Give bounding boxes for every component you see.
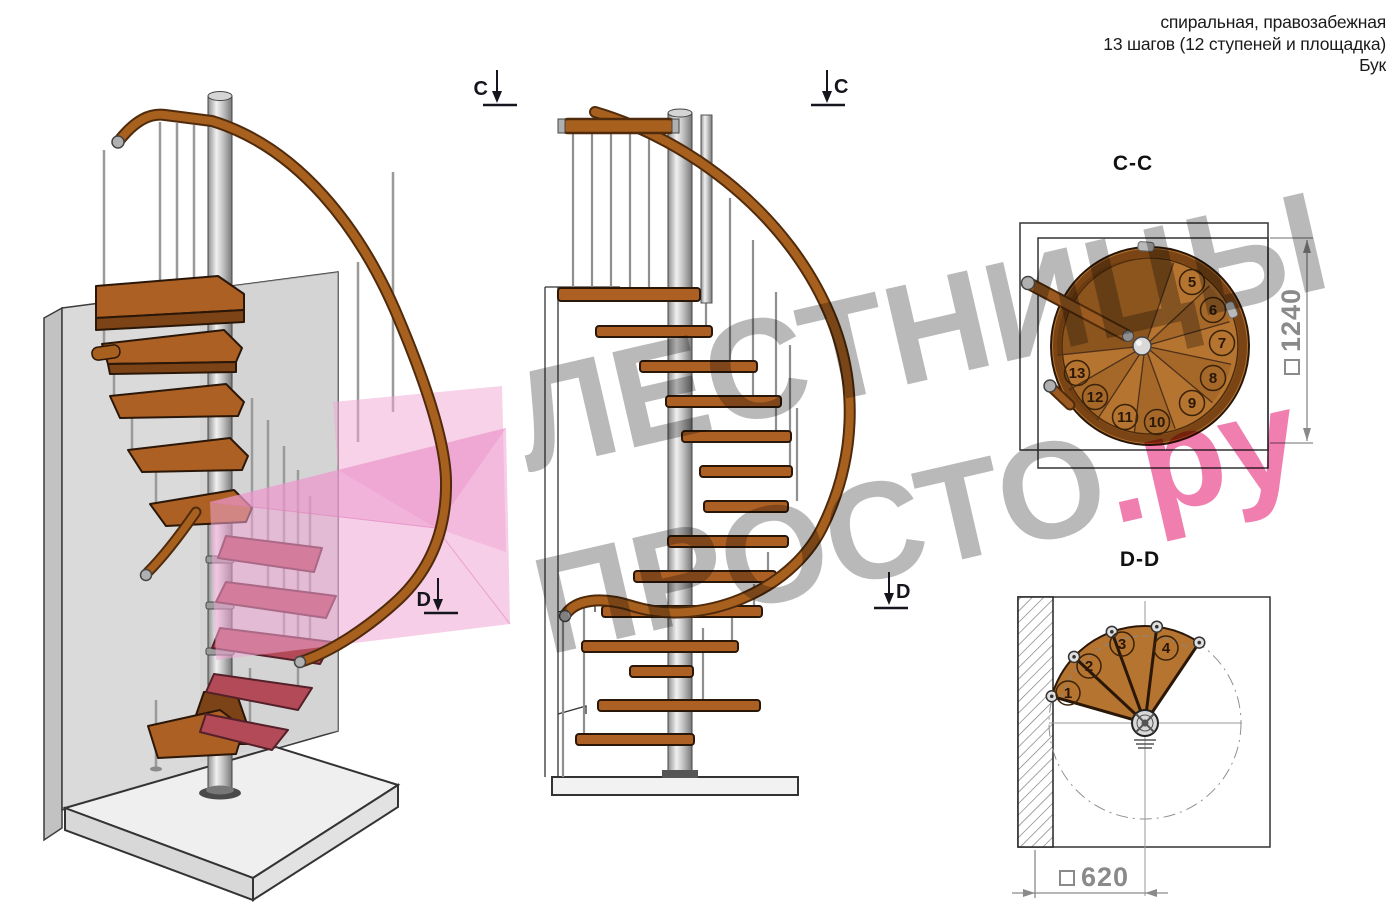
dd-step-fan: 1234 [1046,621,1204,723]
dd-dimension-value: 620 [1081,862,1129,892]
title-line-material: Бук [1103,55,1386,77]
step-number: 1 [1064,685,1072,702]
marker-c-left: C [474,70,517,105]
drawing-sheet: C-C 5678910111213 1240 [0,0,1400,922]
baluster-foot [150,767,162,772]
section-dd-plan: D-D 1234 620 [1012,548,1270,898]
wall-edge [44,308,62,840]
step-number: 2 [1085,658,1093,675]
watermark: ЛЕСТНИЦЫ ПРОСТО.ру [499,161,1341,684]
svg-text:C: C [834,76,848,98]
svg-text:D: D [417,589,431,611]
dd-wall-hatch [1018,597,1053,847]
title-line-steps: 13 шагов (12 ступеней и площадка) [1103,34,1386,56]
isometric-view [44,92,510,901]
cc-title: C-C [1113,152,1153,175]
floor-line [552,777,798,795]
marker-c-right: C [811,70,848,105]
square-section-symbol [1060,871,1074,885]
svg-text:D: D [896,581,910,603]
svg-text:C: C [474,78,488,100]
step-number: 3 [1118,636,1126,653]
square-section-symbol [1285,360,1299,374]
step-number: 4 [1162,640,1171,657]
landing-elevation [558,288,700,301]
staircase-drawing: C-C 5678910111213 1240 [0,0,1400,922]
title-block: спиральная, правозабежная 13 шагов (12 с… [1103,12,1386,77]
title-line-type: спиральная, правозабежная [1103,12,1386,34]
